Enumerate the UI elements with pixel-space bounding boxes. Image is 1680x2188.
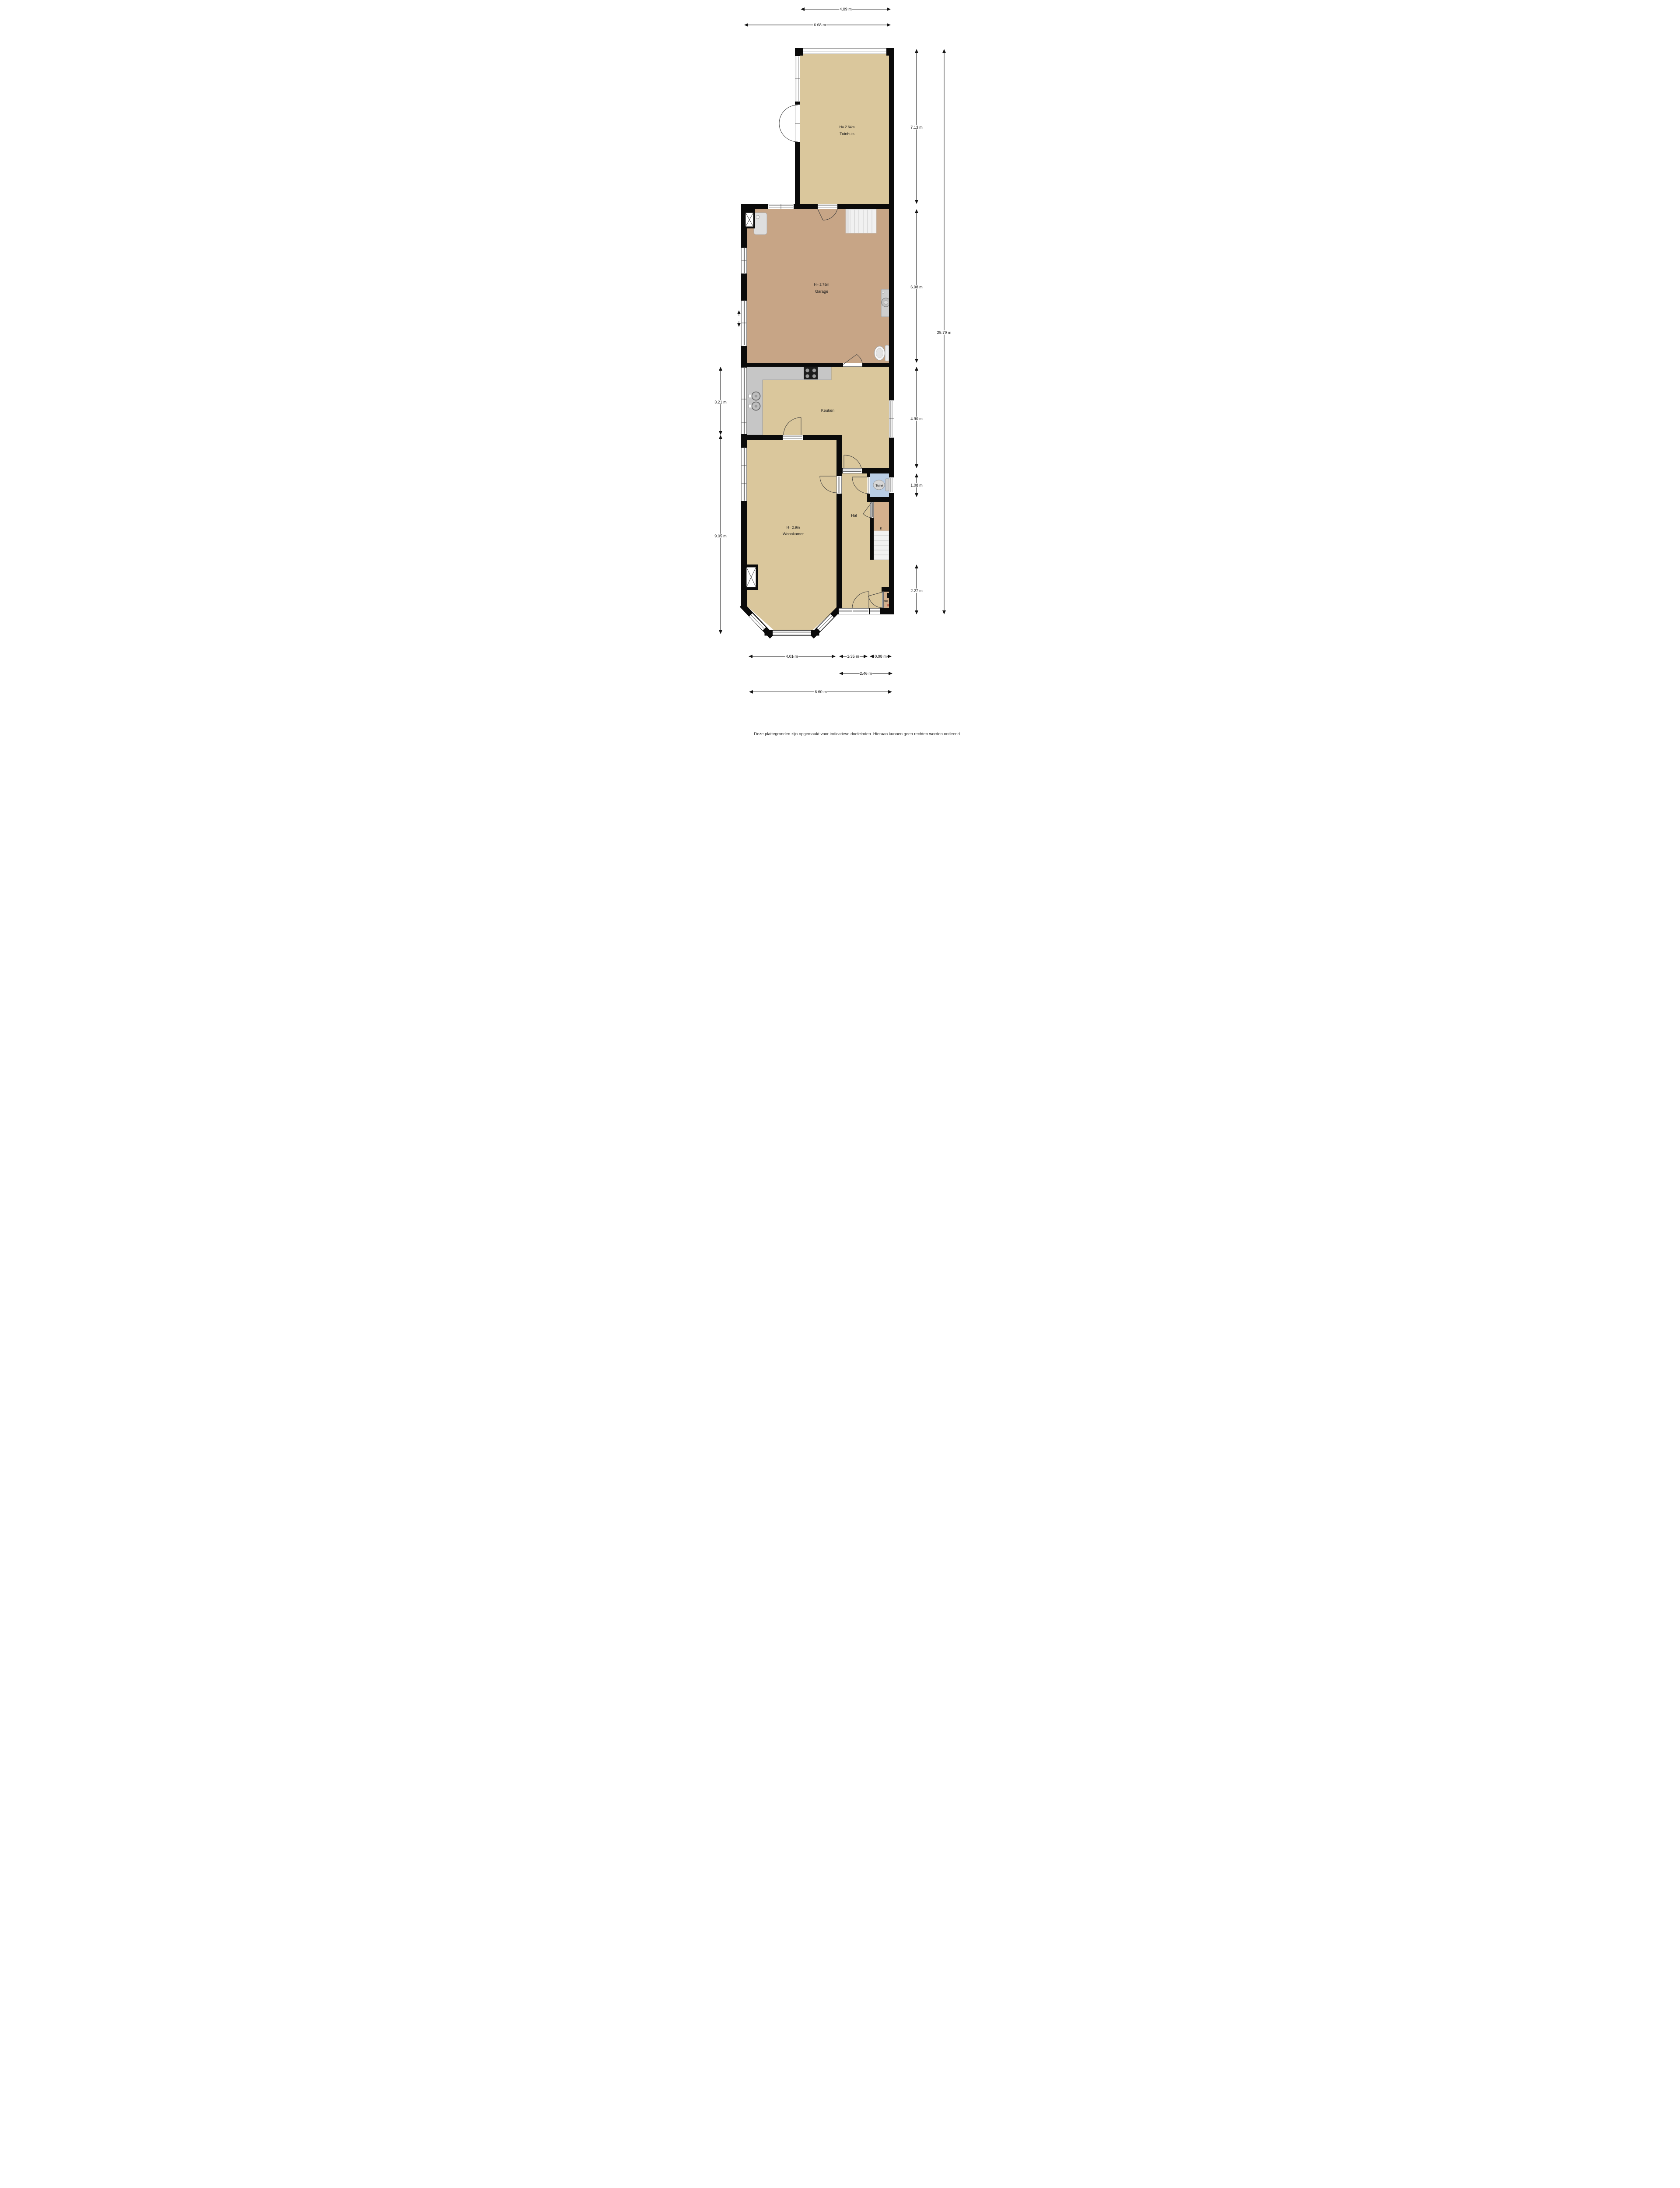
tuinhuis-height-label: H= 2.64m — [840, 125, 855, 129]
garage-top-window — [768, 204, 794, 209]
garage-toilet-fixture — [875, 345, 889, 361]
dim-label: 4.01 m — [786, 654, 798, 659]
kast-door-opening — [871, 502, 874, 518]
toilet-bottom-wall — [867, 497, 894, 502]
dim-left-woonkamer: 9.05 m — [714, 435, 727, 634]
meterkast-label: MK — [884, 600, 888, 603]
floorplan-drawing: 4.09 m 6.68 m 7.13 m 6.98 m 4.90 m 1.08 … — [630, 0, 1050, 747]
woonkamer-left-window — [742, 448, 747, 501]
floorplan-page: 4.09 m 6.68 m 7.13 m 6.98 m 4.90 m 1.08 … — [630, 0, 1050, 747]
keuken-left-window — [742, 368, 747, 434]
front-door-glazing — [852, 609, 869, 614]
dim-label: 3.21 m — [714, 400, 727, 404]
dim-label: 9.05 m — [714, 534, 727, 538]
garage-stairs — [846, 209, 876, 233]
room-floors — [747, 53, 889, 631]
keuken-hal-door-opening — [843, 469, 862, 473]
tuinhuis-door-leaf-top — [779, 105, 798, 123]
meterkast-top-wall — [882, 587, 894, 592]
garage-left-window-lower — [742, 301, 747, 346]
keuken-right-window — [889, 400, 894, 438]
garage-top-door-opening — [818, 204, 837, 209]
dim-label: 1.35 m — [847, 654, 859, 659]
garage-chimney-shaft — [745, 213, 753, 227]
keuken-label: Keuken — [821, 408, 835, 413]
dim-bottom-entry: 2.46 m — [840, 671, 892, 676]
garage-bottom-wall — [741, 363, 894, 367]
dim-label: 0.98 m — [875, 654, 887, 659]
toilet-wall-stub-top — [867, 473, 870, 477]
right-exterior-wall — [889, 48, 894, 614]
dim-bottom-closet: 0.98 m — [870, 654, 891, 659]
dim-label: 4.09 m — [840, 7, 852, 11]
dim-label: 2.27 m — [910, 589, 923, 593]
dim-label: 1.08 m — [910, 483, 923, 487]
disclaimer-text: Deze plattegronden zijn opgemaakt voor i… — [665, 732, 1050, 736]
woonkamer-height-label: H= 2.9m — [787, 526, 800, 529]
dim-label: 2.46 m — [860, 671, 872, 676]
dim-label: 6.68 m — [814, 23, 826, 27]
tuinhuis-label: Tuinhuis — [840, 132, 854, 136]
garage-height-label: H= 2.75m — [814, 283, 829, 287]
woonkamer-label: Woonkamer — [783, 532, 804, 536]
woonkamer-hal-wall — [836, 435, 842, 610]
garage-left-window-upper — [742, 248, 747, 273]
dim-label: 6.60 m — [815, 690, 827, 694]
toilet-door-opening — [868, 477, 871, 494]
dim-label: 25.79 m — [937, 330, 952, 335]
dim-top-total: 6.68 m — [745, 23, 890, 27]
dim-right-total: 25.79 m — [937, 49, 952, 614]
hal-label: Hal — [851, 513, 857, 518]
dim-label: 6.98 m — [910, 285, 923, 289]
dim-right-toilet: 1.08 m — [910, 474, 923, 497]
hal-stairs — [874, 531, 889, 560]
dim-bottom-total: 6.60 m — [749, 690, 892, 694]
boiler — [754, 213, 767, 235]
toilet-label: Toilet — [875, 484, 883, 487]
cooktop — [804, 367, 818, 379]
dim-right-keuken: 4.90 m — [910, 367, 923, 468]
garage-keuken-door-opening — [843, 363, 862, 367]
dim-left-keuken: 3.21 m — [714, 367, 727, 435]
dim-right-tuinhuis: 7.13 m — [910, 49, 923, 203]
garage-label: Garage — [815, 289, 828, 294]
keuken-woonkamer-door-opening — [783, 435, 803, 440]
dim-label: 4.90 m — [910, 417, 923, 421]
dim-right-front: 2.27 m — [910, 565, 923, 614]
tuinhuis-top-window — [803, 49, 886, 54]
tuinhuis-left-window — [795, 56, 800, 102]
woonkamer-door-opening — [837, 476, 842, 494]
woonkamer-chimney-shaft — [746, 567, 756, 587]
tuinhuis-door-leaf-bottom — [779, 123, 798, 142]
toilet-right-window — [889, 477, 894, 493]
dim-bottom-hal: 1.35 m — [840, 654, 867, 659]
dim-label: 7.13 m — [910, 125, 923, 130]
front-window-left — [839, 609, 852, 614]
front-window-right — [870, 609, 880, 614]
dim-top-tuinhuis: 4.09 m — [801, 7, 890, 11]
dim-right-garage: 6.98 m — [910, 210, 923, 362]
kast-label: K — [880, 526, 882, 530]
dim-bottom-woonkamer: 4.01 m — [749, 654, 835, 659]
